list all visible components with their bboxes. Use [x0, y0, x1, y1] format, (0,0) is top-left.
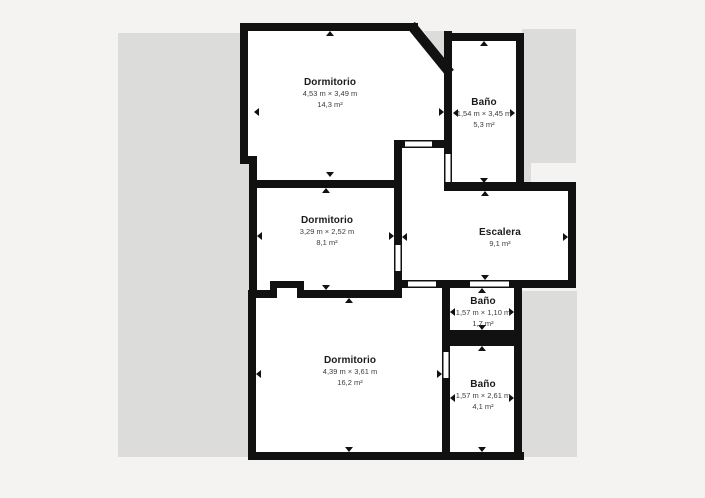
room-floor-bano-bottom — [448, 342, 518, 454]
room-floor-bano-top — [448, 37, 520, 187]
floorplan-canvas: Dormitorio 4,53 m × 3,49 m 14,3 m² Baño … — [0, 0, 705, 498]
adjacent-area-bottom-right — [522, 291, 577, 457]
floorplan-drawing — [0, 0, 705, 498]
adjacent-area-top-right — [522, 29, 576, 190]
room-floor-dormitorio-middle — [253, 184, 402, 294]
room-floor-dormitorio-bottom — [252, 284, 448, 454]
door-bano-small — [470, 282, 509, 287]
door-dormitorio-middle — [396, 245, 401, 271]
door-bano-top — [446, 154, 451, 182]
door-bano-bottom — [444, 352, 449, 378]
door-dormitorio-bottom — [408, 282, 436, 287]
wall-notch-opening — [277, 288, 297, 298]
door-top-dormitorio — [405, 142, 432, 147]
adjacent-area-left — [118, 33, 252, 457]
